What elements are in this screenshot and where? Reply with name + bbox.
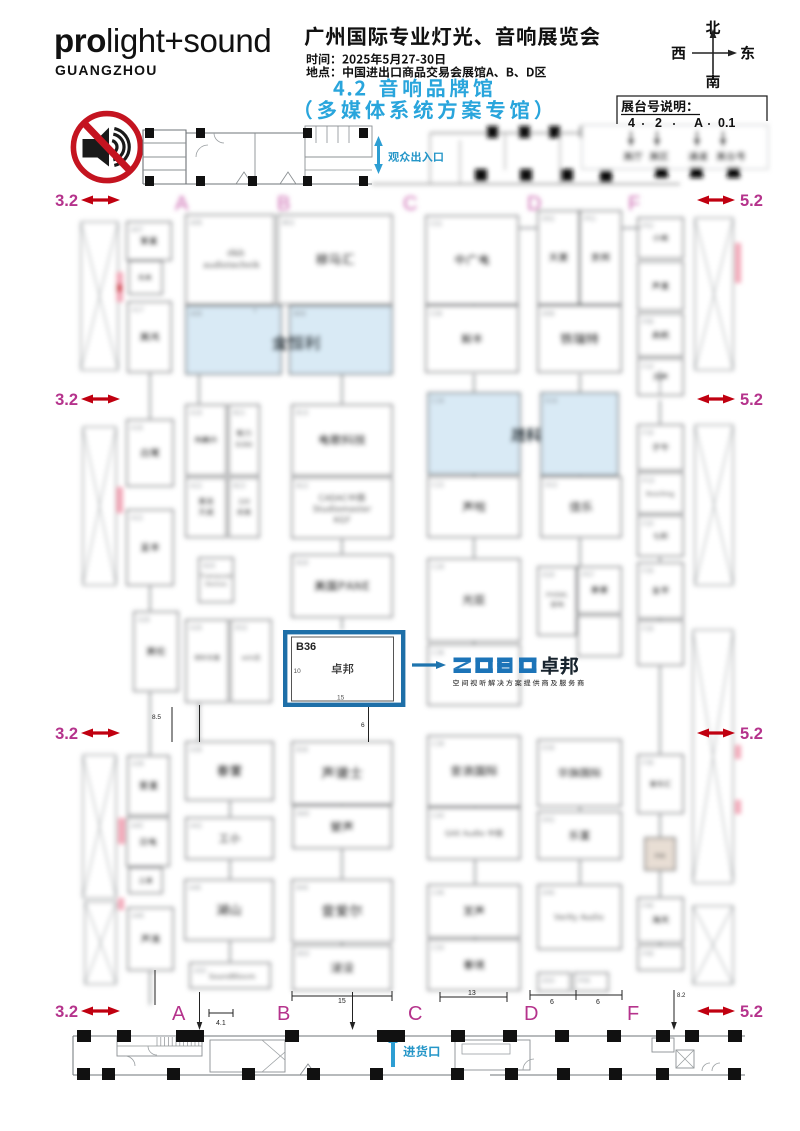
svg-text:GUANGZHOU: GUANGZHOU [55,62,158,78]
svg-text:15: 15 [338,998,346,1005]
svg-text:8.5: 8.5 [152,714,161,721]
svg-text:D: D [527,193,541,215]
svg-text:5.2: 5.2 [740,725,763,743]
svg-text:10: 10 [294,668,302,675]
svg-text:5.2: 5.2 [740,192,763,210]
svg-text:A: A [175,193,189,215]
svg-text:F: F [628,193,640,215]
svg-text:B: B [277,1003,290,1025]
svg-text:B36: B36 [296,641,316,653]
svg-text:4.1: 4.1 [216,1020,226,1027]
svg-text:A: A [694,116,703,130]
svg-text:A: A [172,1003,186,1025]
svg-text:C: C [408,1003,422,1025]
svg-text:B: B [277,193,290,215]
svg-text:D: D [524,1003,538,1025]
svg-text:6: 6 [550,999,554,1006]
svg-text:15: 15 [337,695,345,702]
svg-text:prolight+sound: prolight+sound [54,22,271,59]
svg-text:C: C [403,193,417,215]
svg-text:0.1: 0.1 [718,116,735,130]
svg-text:13: 13 [468,990,476,997]
svg-text:8.2: 8.2 [677,993,686,999]
svg-text:6: 6 [596,999,600,1006]
svg-text:5.2: 5.2 [740,1003,763,1021]
svg-text:3.2: 3.2 [55,391,78,409]
svg-text:3.2: 3.2 [55,1003,78,1021]
svg-text:2: 2 [655,116,662,130]
svg-text:F: F [627,1003,639,1025]
svg-text:3.2: 3.2 [55,192,78,210]
svg-text:5.2: 5.2 [740,391,763,409]
svg-text:3.2: 3.2 [55,725,78,743]
svg-text:6: 6 [361,722,365,729]
svg-text:4: 4 [628,116,635,130]
